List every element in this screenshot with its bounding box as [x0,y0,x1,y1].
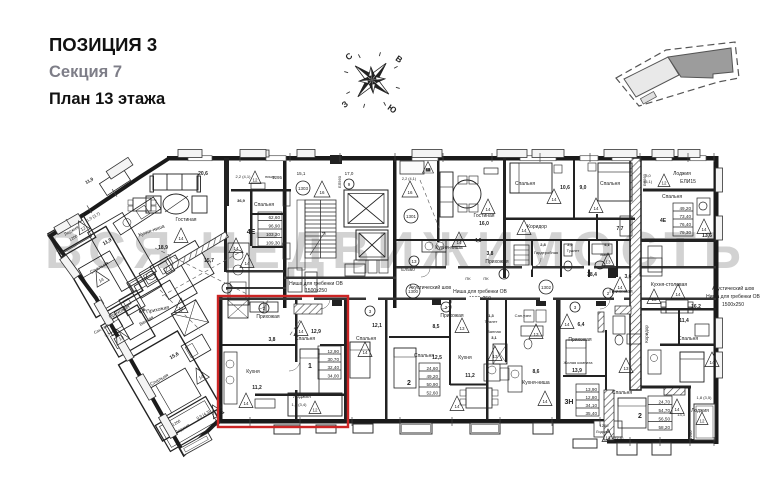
svg-text:8,6: 8,6 [533,369,540,375]
svg-text:49,20: 49,20 [680,206,692,211]
svg-text:Жилая комната: Жилая комната [564,360,594,365]
svg-text:14: 14 [675,292,681,297]
svg-text:6,4: 6,4 [578,322,585,328]
svg-text:1302: 1302 [541,285,552,290]
svg-text:Коридор: Коридор [527,224,547,230]
svg-text:Кухня: Кухня [246,369,260,375]
svg-text:56,50: 56,50 [659,417,671,422]
svg-text:103,20: 103,20 [266,232,280,237]
svg-text:11,4: 11,4 [679,318,689,324]
svg-text:1,3: 1,3 [488,313,494,318]
svg-text:Спальня: Спальня [295,336,315,342]
svg-text:2: 2 [407,380,411,387]
svg-text:1303: 1303 [298,186,309,191]
svg-text:14: 14 [362,350,368,355]
svg-text:Прихожая: Прихожая [256,314,279,320]
svg-text:Коридор: Коридор [644,325,649,343]
svg-text:34,00: 34,00 [328,374,340,379]
svg-text:(5,1): (5,1) [644,179,653,184]
svg-text:35,40: 35,40 [586,411,598,416]
svg-text:76,40: 76,40 [680,222,692,227]
svg-text:Спальня: Спальня [600,181,620,187]
svg-text:Лоджия: Лоджия [691,408,709,414]
svg-text:14: 14 [674,407,680,412]
svg-text:13,3: 13,3 [677,412,686,417]
svg-text:ПК: ПК [483,276,489,281]
svg-text:Ниша для гребенки ОВ: Ниша для гребенки ОВ [706,294,760,300]
svg-text:Гостиная: Гостиная [176,217,197,223]
svg-text:2,0: 2,0 [567,242,573,247]
svg-text:План 13 этажа: План 13 этажа [49,90,166,108]
svg-text:Спальня: Спальня [678,336,698,342]
svg-text:96,90: 96,90 [269,224,281,229]
svg-text:16,2: 16,2 [691,304,701,310]
svg-text:7,7: 7,7 [617,226,624,232]
svg-text:13,6: 13,6 [702,233,712,239]
svg-text:50,90: 50,90 [427,382,439,387]
svg-text:Акустический шов: Акустический шов [712,285,754,292]
svg-text:14: 14 [485,207,491,212]
svg-text:Прихожая: Прихожая [485,259,508,265]
svg-text:14: 14 [178,306,184,311]
svg-text:Спальня: Спальня [254,202,274,208]
svg-text:12,5: 12,5 [432,355,442,361]
svg-text:1300: 1300 [408,289,419,294]
svg-text:13,9: 13,9 [572,368,582,374]
svg-text:14: 14 [551,197,557,202]
svg-text:14: 14 [617,285,623,290]
svg-text:9,0: 9,0 [580,185,587,191]
svg-text:8,5: 8,5 [433,324,440,330]
svg-text:Ниша для гребенки ОВ: Ниша для гребенки ОВ [289,281,343,287]
svg-text:14: 14 [564,322,570,327]
svg-text:52,60: 52,60 [427,391,439,396]
svg-text:3Н: 3Н [565,399,574,406]
svg-text:3,0: 3,0 [645,173,651,178]
svg-text:13: 13 [623,366,629,371]
svg-text:13,90: 13,90 [586,387,598,392]
svg-text:13: 13 [533,332,539,337]
svg-text:38,4: 38,4 [587,272,597,278]
svg-text:1,8 (3,5): 1,8 (3,5) [697,395,713,400]
svg-text:14: 14 [542,399,548,404]
svg-text:20,6: 20,6 [198,171,208,177]
svg-text:109,30: 109,30 [266,241,280,246]
svg-text:14: 14 [178,236,184,241]
svg-text:36,9: 36,9 [237,198,246,203]
svg-text:4,6: 4,6 [475,238,482,244]
svg-text:Прихожая: Прихожая [568,337,591,343]
svg-text:62,60: 62,60 [269,215,281,220]
svg-text:12: 12 [661,181,667,186]
svg-text:13: 13 [492,354,498,359]
svg-text:12: 12 [605,436,611,441]
svg-text:2: 2 [638,413,642,420]
svg-text:1500х250: 1500х250 [722,302,744,308]
svg-text:1,7 (3,4): 1,7 (3,4) [292,402,308,407]
svg-text:1301: 1301 [406,214,417,219]
svg-text:49,20: 49,20 [427,374,439,379]
svg-text:Ванная: Ванная [487,329,501,334]
svg-text:12,80: 12,80 [586,395,598,400]
svg-text:79,30: 79,30 [680,230,692,235]
svg-text:12: 12 [699,419,705,424]
svg-text:14: 14 [298,329,304,334]
svg-text:12,1: 12,1 [372,323,382,329]
svg-text:15,1: 15,1 [297,171,306,176]
svg-text:14: 14 [243,401,249,406]
svg-text:Кухня-ниша: Кухня-ниша [522,380,550,386]
svg-text:ЕЛИ15: ЕЛИ15 [680,179,696,185]
svg-text:14: 14 [709,360,715,365]
svg-text:Ниша для гребенки ОВ: Ниша для гребенки ОВ [453,289,507,295]
svg-text:15,7: 15,7 [204,258,214,264]
svg-text:ПОЗИЦИЯ 3: ПОЗИЦИЯ 3 [49,34,157,55]
svg-text:ЕЛ560: ЕЛ560 [401,267,415,272]
svg-text:Кухня-столовая: Кухня-столовая [651,282,688,288]
svg-text:Спальня: Спальня [356,336,376,342]
svg-text:3,8: 3,8 [487,251,494,257]
svg-text:12: 12 [312,408,318,413]
svg-text:Кухня-ниша: Кухня-ниша [435,245,463,251]
svg-text:2,8: 2,8 [540,242,546,247]
svg-text:Кухня: Кухня [458,355,472,361]
svg-text:12,9: 12,9 [311,329,321,335]
svg-text:12,90: 12,90 [328,349,340,354]
svg-text:11,2: 11,2 [465,373,475,379]
svg-text:4,1: 4,1 [604,242,610,247]
svg-text:18,9: 18,9 [158,245,168,251]
svg-text:10,6: 10,6 [560,185,570,191]
svg-text:16: 16 [407,190,413,195]
svg-text:Спальня: Спальня [662,194,682,200]
svg-text:14: 14 [244,261,250,266]
svg-text:Гардеробная: Гардеробная [534,250,558,255]
svg-text:1260: 1260 [600,423,610,428]
svg-text:1295: 1295 [272,175,283,180]
svg-text:Спальня: Спальня [612,390,632,396]
svg-text:1: 1 [308,363,312,370]
svg-text:34,10: 34,10 [586,403,598,408]
svg-text:ПК: ПК [465,276,471,281]
svg-text:3,6: 3,6 [625,274,632,280]
svg-text:1200: 1200 [688,430,693,440]
svg-text:16: 16 [319,190,325,195]
svg-text:1500х250: 1500х250 [305,288,327,294]
svg-text:13: 13 [411,259,417,264]
svg-text:Секция 7: Секция 7 [49,63,122,81]
svg-text:12: 12 [252,178,258,183]
svg-text:14: 14 [593,206,599,211]
svg-text:58,20: 58,20 [659,425,671,430]
svg-text:ЕЛ560: ЕЛ560 [337,175,342,188]
svg-text:14: 14 [456,240,462,245]
svg-text:14: 14 [233,246,239,251]
svg-text:3,8: 3,8 [269,337,276,343]
svg-text:13: 13 [651,297,657,302]
svg-text:Лоджия: Лоджия [293,394,311,400]
svg-text:Туалет: Туалет [567,248,580,253]
svg-text:11,2: 11,2 [252,385,262,391]
svg-text:13: 13 [459,326,465,331]
svg-text:1200: 1200 [323,392,333,397]
svg-text:4Е: 4Е [660,218,667,224]
svg-text:73,40: 73,40 [680,214,692,219]
svg-text:12: 12 [426,167,431,172]
svg-text:3,1: 3,1 [491,335,497,340]
svg-text:54,70: 54,70 [659,408,671,413]
svg-text:16,0: 16,0 [479,221,489,227]
svg-text:17,0: 17,0 [345,171,354,176]
svg-text:13: 13 [605,260,611,265]
svg-text:Сан.узел: Сан.узел [515,313,532,318]
svg-text:14: 14 [454,404,460,409]
svg-text:14: 14 [701,227,707,232]
svg-text:2,2 (4,1): 2,2 (4,1) [402,177,417,181]
svg-text:4Е: 4Е [247,229,256,236]
svg-text:2,2 (4,1): 2,2 (4,1) [236,174,252,179]
svg-text:Лоджия: Лоджия [673,171,691,177]
svg-text:Спальня: Спальня [515,181,535,187]
svg-text:Гостиная: Гостиная [474,213,495,219]
svg-text:24,60: 24,60 [427,366,439,371]
svg-text:24,70: 24,70 [659,400,671,405]
svg-text:32,40: 32,40 [328,365,340,370]
svg-text:30,70: 30,70 [328,357,340,362]
svg-text:Прихожая: Прихожая [440,313,463,319]
svg-text:14: 14 [521,228,527,233]
svg-text:Туалет: Туалет [485,319,498,324]
